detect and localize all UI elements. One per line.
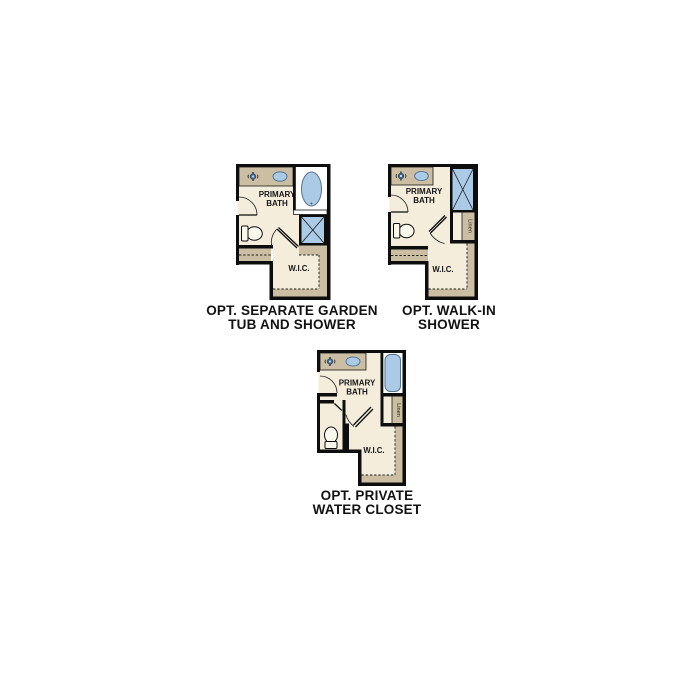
caption-walk-in-shower: OPT. WALK-IN SHOWER [389,304,509,332]
floorplan-separate-garden-tub-and-shower: PRIMARY BATH W.I.C. [236,164,331,300]
caption-separate-garden-tub-and-shower: OPT. SEPARATE GARDEN TUB AND SHOWER [200,304,384,332]
floorplan-walk-in-shower: PRIMARY BATH W.I.C. Linen [388,164,478,300]
room-label-line1: PRIMARY [339,379,376,388]
caption-line1: OPT. PRIVATE [306,489,428,503]
linen-label: Linen [467,219,473,233]
toilet-icon [394,224,415,239]
wic-label: W.I.C. [432,265,453,274]
toilet-icon [325,427,338,449]
room-label-line1: PRIMARY [406,187,443,196]
tub-deck-ledge [294,210,328,215]
caption-private-water-closet: OPT. PRIVATE WATER CLOSET [306,489,428,517]
tub-icon [385,355,401,392]
caption-line1: OPT. WALK-IN [389,304,509,318]
room-label-line2: BATH [266,199,288,208]
figure-private-water-closet: PRIMARY BATH W.I.C. Linen [317,350,406,486]
caption-line2: SHOWER [389,318,509,332]
room-label-line1: PRIMARY [259,190,296,199]
sink-icon [415,171,429,180]
toilet-icon [242,226,263,241]
sink-icon [273,172,287,181]
figure-separate-garden-tub-and-shower: PRIMARY BATH W.I.C. [236,164,331,300]
garden-tub-icon [302,172,322,206]
wic-label: W.I.C. [288,264,309,273]
figure-walk-in-shower: PRIMARY BATH W.I.C. Linen [388,164,478,300]
room-label-line2: BATH [413,196,435,205]
floorplan-private-water-closet: PRIMARY BATH W.I.C. Linen [317,350,406,486]
walk-in-shower-icon [450,167,476,213]
caption-line2: WATER CLOSET [306,503,428,517]
linen-label: Linen [395,403,401,417]
wic-label: W.I.C. [363,446,384,455]
shower-icon [299,215,327,246]
caption-line1: OPT. SEPARATE GARDEN [200,304,384,318]
sink-icon [346,357,360,366]
caption-line2: TUB AND SHOWER [200,318,384,332]
room-label-line2: BATH [346,388,368,397]
floorplan-sheet: PRIMARY BATH W.I.C. OPT. SEPARATE GARDEN… [0,0,687,687]
